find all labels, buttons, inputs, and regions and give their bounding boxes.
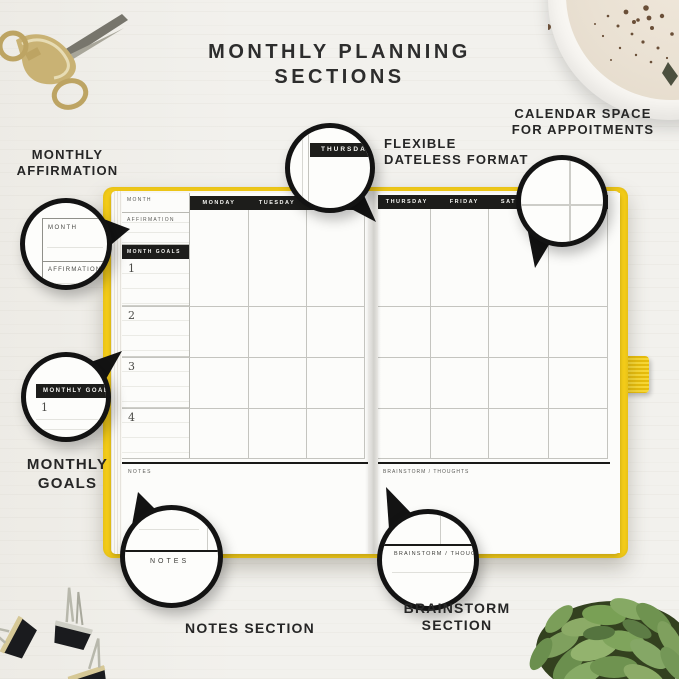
zoom-month-label: MONTH (48, 225, 78, 231)
page-title: MONTHLY PLANNING SECTIONS (0, 40, 679, 90)
goal-number-1: 1 (122, 259, 189, 275)
zoom-grid-line (440, 514, 441, 545)
day-thursday: THURSDAY (378, 195, 436, 209)
ruled-line (47, 247, 103, 248)
ruled-line (392, 572, 476, 573)
zoom-month-box: MONTH AFFIRMATION (42, 218, 108, 290)
grid-line (306, 210, 307, 458)
brainstorm-label-line1: BRAINSTORM (398, 600, 516, 617)
notes-section-label: NOTES (128, 469, 152, 475)
grid-line (122, 458, 365, 459)
notes-callout-label: NOTES SECTION (185, 620, 315, 636)
planner-right-page: THURSDAY FRIDAY SATURDAY BRAINSTORM / TH… (378, 193, 620, 553)
brainstorm-callout-label: BRAINSTORM SECTION (398, 600, 516, 634)
affirmation-callout-label: MONTHLY AFFIRMATION (5, 147, 130, 179)
dateless-label-line2: DATELESS FORMAT (384, 152, 544, 168)
zoom-grid-line (207, 510, 208, 552)
affirmation-box-label: AFFIRMATION (127, 217, 175, 223)
brainstorm-divider-line (378, 462, 610, 464)
grid-line (378, 408, 608, 409)
goal-number-3: 3 (122, 357, 189, 373)
goal-cell-2: 2 (122, 306, 189, 357)
grid-line (378, 306, 608, 307)
ruled-line (139, 529, 199, 530)
ruled-line (36, 419, 106, 420)
grid-line (122, 357, 365, 358)
zoom-brainstorm-line (382, 544, 479, 546)
grid-line (364, 210, 365, 458)
page-edge-line (302, 128, 303, 213)
goals-callout-label: MONTHLY GOALS (10, 455, 125, 493)
goal-cell-3: 3 (122, 357, 189, 408)
grid-line (548, 209, 549, 458)
grid-line (378, 357, 608, 358)
dateless-callout-label: FLEXIBLE DATELESS FORMAT (384, 136, 544, 168)
grid-line (607, 209, 608, 458)
brainstorm-label-line2: SECTION (398, 617, 516, 634)
product-infographic: MONTHLY PLANNING SECTIONS MONTH AFFIRMAT… (0, 0, 679, 679)
affirmation-label-line2: AFFIRMATION (5, 163, 130, 179)
zoom-monthly-goals-bar: MONTHLY GOALS (36, 384, 110, 398)
title-line-1: MONTHLY PLANNING (0, 40, 679, 65)
affirmation-box: AFFIRMATION (122, 213, 189, 245)
grid-line (430, 209, 431, 458)
title-line-2: SECTIONS (0, 65, 679, 90)
dateless-label-line1: FLEXIBLE (384, 136, 544, 152)
grid-line (488, 209, 489, 458)
goals-magnifier: MONTHLY GOALS 1 (21, 352, 111, 442)
box-divider (43, 261, 107, 262)
zoom-notes-label: NOTES (150, 558, 189, 565)
goals-label-line2: GOALS (10, 474, 125, 493)
grid-line (122, 306, 365, 307)
zoom-grid-line (521, 204, 608, 206)
plant-decoration (529, 549, 679, 679)
calendar-label-line2: FOR APPOITMENTS (497, 122, 669, 138)
zoom-notes-line (125, 550, 223, 552)
month-goals-bar: MONTH GOALS (122, 245, 189, 259)
calendar-callout-label: CALENDAR SPACE FOR APPOITMENTS (497, 106, 669, 138)
day-friday: FRIDAY (436, 195, 494, 209)
ruled-line (34, 429, 108, 430)
brainstorm-magnifier: BRAINSTORM / THOUGH (377, 509, 479, 611)
month-box: MONTH (122, 193, 189, 213)
planner-left-page: MONTH AFFIRMATION MONTH GOALS 1 2 3 4 MO… (122, 193, 368, 553)
goal-number-4: 4 (122, 408, 189, 424)
zoom-brainstorm-label: BRAINSTORM / THOUGH (394, 551, 479, 557)
zoom-affirmation-label: AFFIRMATION (48, 267, 101, 273)
goal-cell-1: 1 (122, 259, 189, 306)
day-monday: MONDAY (190, 196, 248, 210)
brainstorm-section-label: BRAINSTORM / THOUGHTS (383, 469, 469, 475)
calendar-magnifier (516, 155, 608, 247)
page-edge-line (308, 128, 309, 213)
binder-clips-decoration (0, 568, 140, 679)
goal-cell-4: 4 (122, 408, 189, 458)
page-stack-edge (111, 191, 122, 554)
notes-divider-line (122, 462, 368, 464)
goal-number-2: 2 (122, 306, 189, 322)
zoom-thursday-bar: THURSDAY (310, 143, 374, 157)
month-box-label: MONTH (127, 197, 152, 203)
affirmation-label-line1: MONTHLY (5, 147, 130, 163)
ruled-line (47, 283, 103, 284)
calendar-label-line1: CALENDAR SPACE (497, 106, 669, 122)
grid-line (378, 458, 608, 459)
grid-line (122, 408, 365, 409)
grid-line (248, 210, 249, 458)
left-sidebar-column: MONTH AFFIRMATION MONTH GOALS 1 2 3 4 (122, 193, 190, 458)
dateless-magnifier: THURSDAY (285, 123, 375, 213)
goals-label-line1: MONTHLY (10, 455, 125, 474)
affirmation-magnifier: MONTH AFFIRMATION (20, 198, 112, 290)
month-goals-bar-label: MONTH GOALS (122, 245, 189, 259)
zoom-goal-number: 1 (41, 401, 48, 414)
